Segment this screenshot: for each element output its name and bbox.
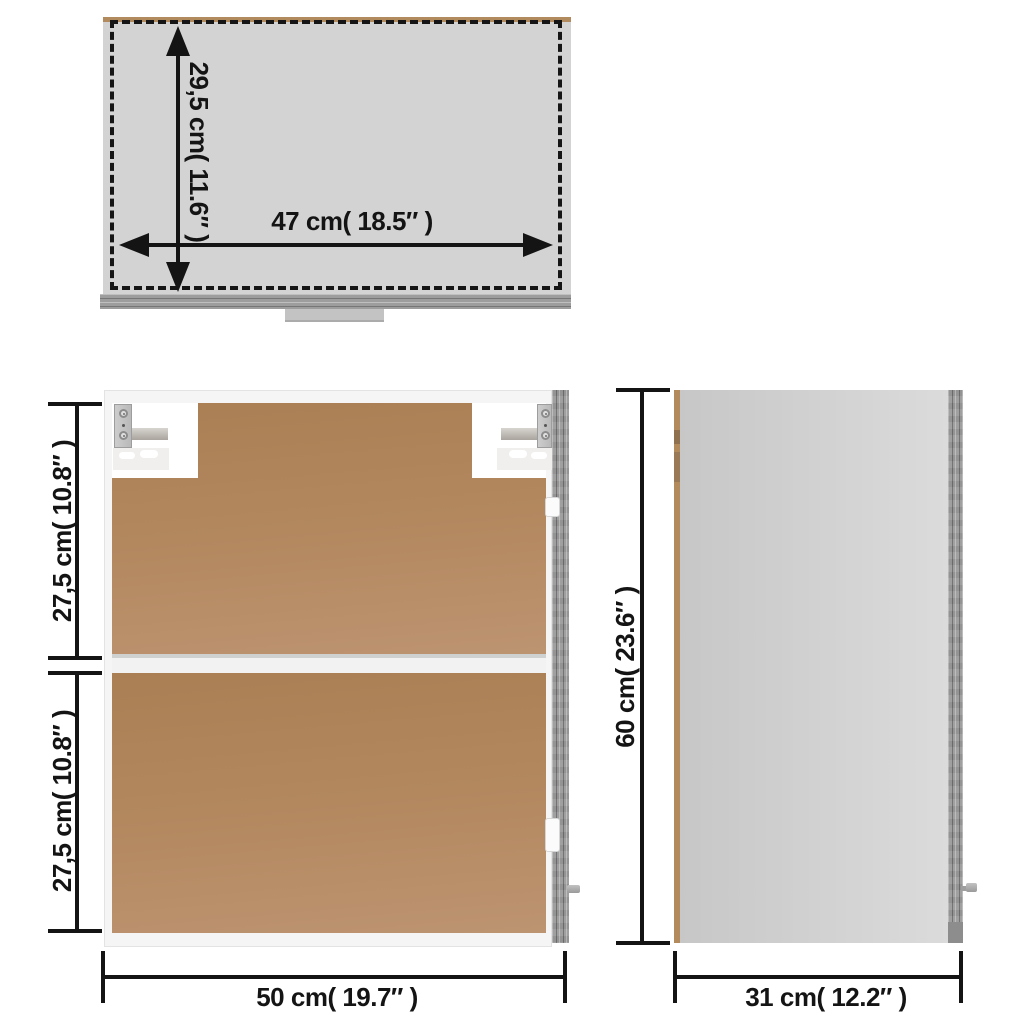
lower-dim-bottom-tick	[48, 929, 102, 933]
front-width-line	[103, 975, 567, 979]
side-height-label: 60 cm( 23.6″ )	[612, 586, 638, 748]
screw-dot-icon	[122, 424, 125, 427]
mounting-bracket-right	[537, 404, 552, 448]
depth-dimension-line	[176, 52, 180, 266]
door-edge-front	[552, 390, 569, 943]
height-dim-bottom-tick	[616, 941, 670, 945]
side-depth-line	[675, 975, 963, 979]
front-lower-height-label: 27,5 cm( 10.8″ )	[49, 710, 75, 892]
front-view: 27,5 cm( 10.8″ ) 27,5 cm( 10.8″ ) 50 cm(…	[0, 360, 620, 1024]
screw-icon	[119, 409, 128, 418]
middle-shelf	[112, 658, 546, 673]
bracket-base-left	[113, 448, 169, 470]
door-handle-front	[567, 885, 580, 893]
screw-icon	[541, 431, 550, 440]
lower-back-panel	[112, 673, 546, 933]
front-upper-height-label: 27,5 cm( 10.8″ )	[49, 440, 75, 622]
door-handle-top	[285, 309, 384, 322]
width-dimension-line	[146, 243, 526, 247]
side-back-edge-cap	[948, 922, 963, 943]
mounting-bracket-left	[114, 404, 132, 448]
screw-icon	[119, 431, 128, 440]
height-dim-line	[640, 390, 644, 943]
upper-dim-bottom-tick	[48, 656, 102, 660]
width-arrow-left	[119, 233, 149, 257]
depth-arrow-down	[166, 262, 190, 292]
door-hinge-upper	[545, 497, 560, 517]
side-depth-right-tick	[959, 951, 963, 1003]
side-panel	[680, 390, 948, 943]
front-width-right-tick	[563, 951, 567, 1003]
side-view: 60 cm( 23.6″ ) 31 cm( 12.2″ )	[600, 360, 1024, 1024]
front-width-label: 50 cm( 19.7″ )	[256, 984, 418, 1010]
bracket-base-right	[497, 448, 553, 470]
side-depth-label: 31 cm( 12.2″ )	[745, 984, 907, 1010]
bracket-rail-left	[132, 428, 168, 440]
door-top-edge	[100, 294, 571, 309]
width-arrow-right	[523, 233, 553, 257]
screw-dot-icon	[544, 424, 547, 427]
top-view: 29,5 cm( 11.6″ ) 47 cm( 18.5″ )	[0, 0, 1024, 340]
top-depth-label: 29,5 cm( 11.6″ )	[186, 62, 212, 243]
screw-icon	[541, 409, 550, 418]
cabinet-dimension-diagram: 29,5 cm( 11.6″ ) 47 cm( 18.5″ )	[0, 0, 1024, 1024]
door-handle-side	[966, 883, 977, 892]
door-hinge-lower	[545, 818, 560, 852]
top-width-label: 47 cm( 18.5″ )	[271, 208, 433, 234]
bracket-rail-right	[501, 428, 537, 440]
side-back-edge	[948, 390, 963, 943]
